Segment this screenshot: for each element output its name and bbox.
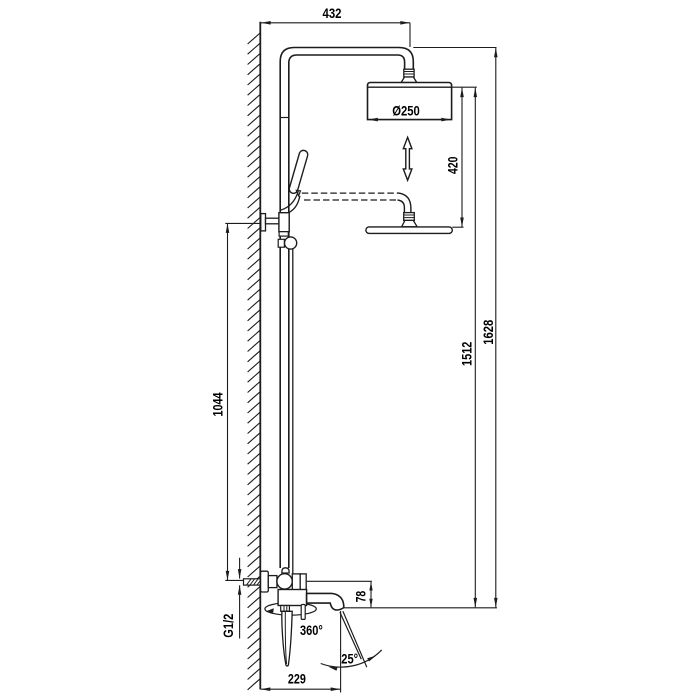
svg-text:420: 420 [445, 156, 461, 173]
svg-text:360°: 360° [300, 622, 323, 638]
svg-text:432: 432 [323, 5, 342, 21]
svg-text:1628: 1628 [480, 320, 496, 345]
svg-text:25°: 25° [341, 650, 358, 666]
svg-text:1044: 1044 [210, 392, 226, 416]
svg-text:229: 229 [288, 671, 306, 687]
svg-text:Ø250: Ø250 [392, 102, 420, 118]
svg-text:78: 78 [352, 591, 368, 603]
svg-text:G1/2: G1/2 [220, 614, 236, 638]
svg-text:1512: 1512 [458, 341, 474, 366]
